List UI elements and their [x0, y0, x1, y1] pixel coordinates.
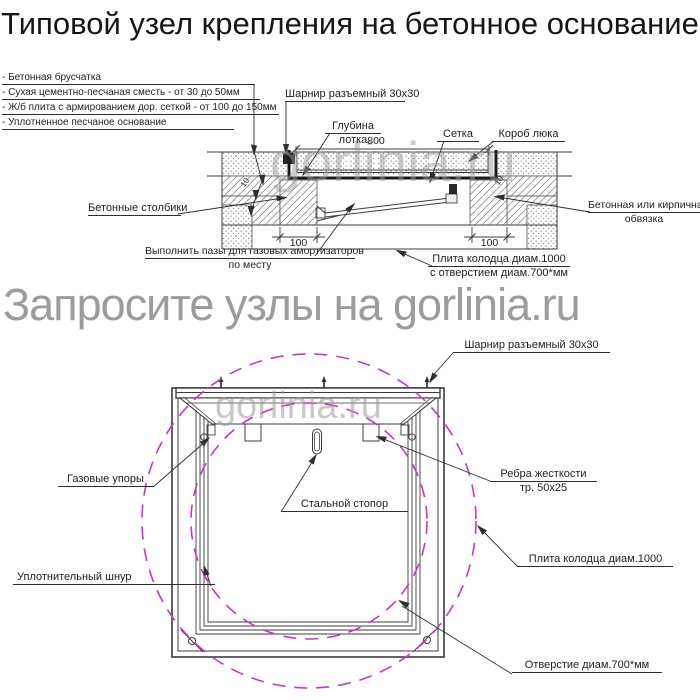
layer-legend: - Бетонная брусчатка - Сухая цементно-пе…	[2, 72, 279, 132]
label-strut-grooves: Выполнить пазы для газовых амортизаторов…	[145, 245, 355, 271]
label-mesh: Сетка	[437, 128, 479, 142]
legend-row: - Ж/б плита с армированием дор. сеткой -…	[2, 102, 279, 115]
steel-stopper	[313, 429, 322, 454]
legend-row: - Сухая цементно-песчаная сместь - от 30…	[2, 87, 260, 100]
outer-frame	[172, 388, 444, 657]
label-steel-stopper: Стальной стопор	[281, 498, 408, 512]
label-hole: Отверстие диам.700*мм	[512, 659, 662, 673]
drawing-sheet: gorlinia.ru Запросите узлы на gorlinia.r…	[0, 0, 700, 700]
sand-base-left	[222, 205, 252, 249]
label-stiffener-ribs: Ребра жесткоститр. 50х25	[490, 468, 597, 494]
dim-800: 800	[362, 136, 390, 147]
label-concrete-posts: Бетонные столбики	[88, 202, 181, 216]
watermark-banner: Запросите узлы на gorlinia.ru	[3, 282, 580, 327]
label-well-plate-section: Плита колодца диам.1000с отверстием диам…	[428, 253, 570, 279]
page-title: Типовой узел крепления на бетонное основ…	[0, 4, 700, 43]
watermark-brand-section: gorlinia.ru	[270, 134, 516, 190]
opening-nested-frames	[196, 400, 420, 634]
title-line-2: на бетонное основание	[362, 6, 699, 41]
legend-row: - Уплотненное песчаное основание	[2, 117, 234, 130]
sand-base-right	[527, 205, 557, 249]
label-well-plate-plan: Плита колодца диам.1000	[518, 553, 673, 567]
legend-row: - Бетонная брусчатка	[2, 72, 255, 85]
steel-stopper-inner	[315, 432, 320, 451]
label-edging: Бетонная или кирпичнаяобвязка	[588, 199, 700, 225]
hole-circle-inner	[191, 403, 427, 639]
title-line-1: Типовой узел крепления	[1, 6, 353, 41]
label-hinge-section: Шарнир разъемный 30х30	[285, 88, 405, 102]
dim-100-right: 100	[474, 238, 505, 249]
strut-fitting-right	[446, 194, 457, 203]
watermark-brand-plan: gorlinia.ru	[215, 387, 382, 425]
label-gas-struts: Газовые упоры	[58, 473, 153, 487]
label-hinge-plan: Шарнир разъемный 30х30	[453, 339, 610, 353]
corner-chamfers	[181, 630, 435, 652]
dim-100-left: 100	[283, 238, 314, 249]
outer-frame-inner	[178, 393, 438, 651]
hinge-pin-tip	[322, 376, 327, 382]
label-seal-cord: Уплотнительный шнур	[13, 571, 215, 585]
label-hatch-box: Короб люка	[492, 128, 565, 142]
gas-strut-lines	[317, 198, 450, 221]
hinge-pin-tip	[425, 376, 430, 382]
